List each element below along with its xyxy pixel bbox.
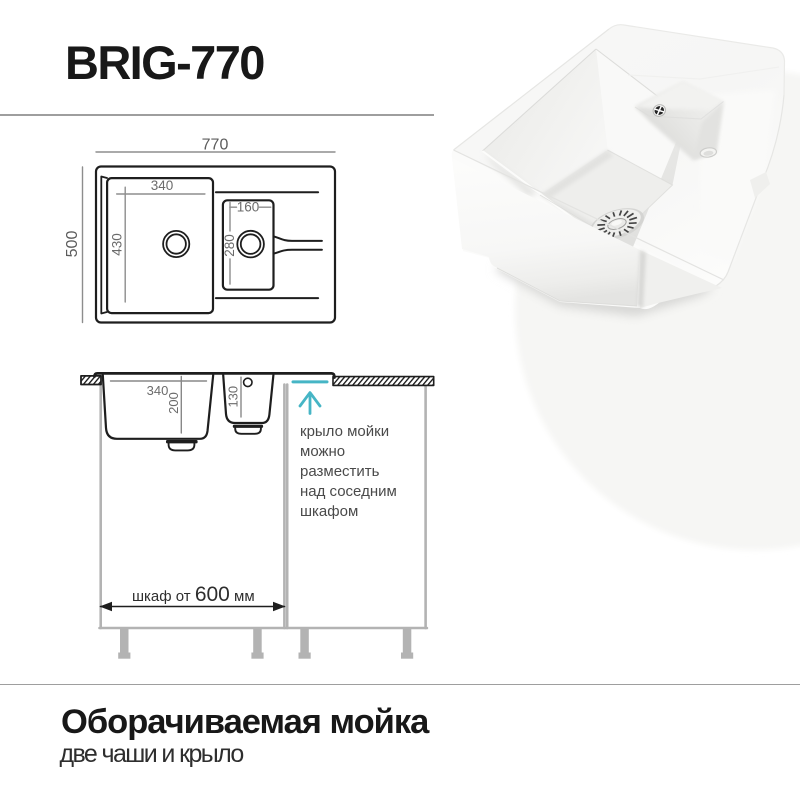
svg-text:130: 130 [226, 386, 241, 408]
svg-text:шкаф от 600 мм: шкаф от 600 мм [132, 583, 255, 606]
svg-text:200: 200 [166, 392, 181, 414]
